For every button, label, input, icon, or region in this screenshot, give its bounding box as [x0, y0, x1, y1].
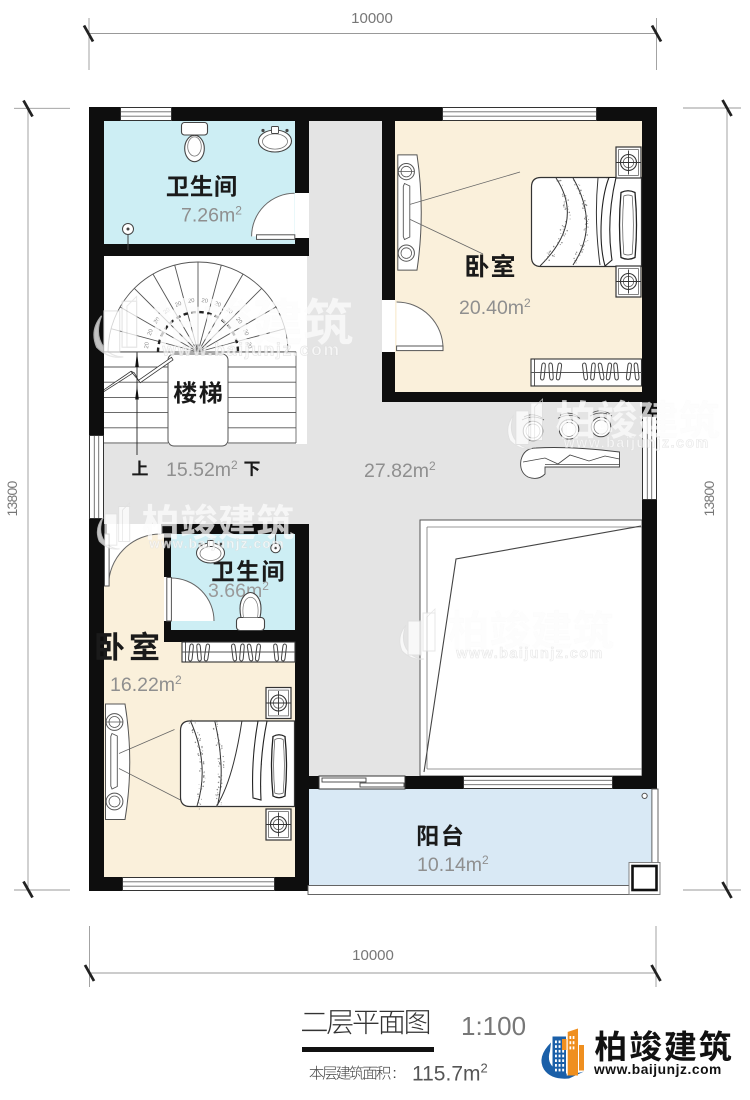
svg-text:www.baijunjz.com: www.baijunjz.com: [593, 1062, 722, 1077]
svg-text:13800: 13800: [4, 481, 20, 517]
svg-text:10000: 10000: [352, 947, 394, 964]
svg-text:115.7m2: 115.7m2: [412, 1061, 488, 1086]
svg-text:13800: 13800: [701, 481, 717, 517]
svg-text:27.82m2: 27.82m2: [364, 459, 436, 482]
svg-text:16.22m2: 16.22m2: [110, 673, 182, 696]
svg-text:15.52m2: 15.52m2: [166, 458, 238, 481]
svg-text:7.26m2: 7.26m2: [181, 204, 242, 227]
svg-text:20: 20: [201, 298, 208, 305]
svg-text:20: 20: [144, 342, 151, 349]
svg-text:1:100: 1:100: [461, 1011, 526, 1041]
svg-text:10000: 10000: [351, 10, 393, 27]
svg-text::: :: [393, 1065, 397, 1082]
svg-text:10.14m2: 10.14m2: [417, 853, 489, 876]
svg-text:3.66m2: 3.66m2: [208, 579, 269, 602]
svg-text:20.40m2: 20.40m2: [459, 296, 531, 319]
